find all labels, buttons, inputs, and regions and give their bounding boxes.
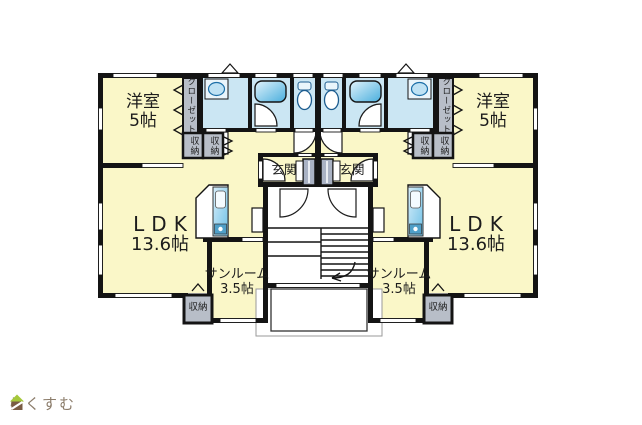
storage-label: 収納 — [203, 134, 223, 157]
vent-triangles — [222, 64, 414, 73]
washbasin-icon — [205, 79, 228, 99]
storage-label: 収納 — [413, 134, 433, 157]
washbasin-icon — [408, 79, 431, 99]
closet-label-left: クローゼット — [183, 80, 198, 131]
entrance-label-right: 玄関 — [331, 163, 373, 177]
counter — [373, 208, 384, 232]
site-logo: らくすむ — [8, 393, 76, 414]
storage-label: 収納 — [433, 134, 453, 157]
ldk-label-left: LDK 13.6帖 — [108, 213, 212, 256]
counter — [252, 208, 263, 232]
bathtub-icon — [350, 81, 381, 102]
house-icon — [8, 393, 26, 411]
floorplan-page: 洋室 5帖 洋室 5帖 LDK 13.6帖 LDK 13.6帖 サンルーム 3.… — [0, 0, 642, 425]
toilet-icon — [325, 82, 339, 110]
sunroom-label-left: サンルーム 3.5帖 — [186, 268, 288, 297]
storage-label: 収納 — [184, 303, 212, 314]
toilet-icon — [298, 82, 312, 110]
storage-label: 収納 — [424, 303, 452, 314]
storage-label: 収納 — [183, 134, 203, 157]
sunroom-label-right: サンルーム 3.5帖 — [348, 268, 450, 297]
bathtub-icon — [255, 81, 286, 102]
bedroom-label-left: 洋室 5帖 — [103, 93, 183, 131]
entrance-label-left: 玄関 — [263, 163, 305, 177]
closet-label-right: クローゼット — [438, 80, 453, 131]
floorplan-drawing — [0, 0, 642, 425]
bedroom-label-right: 洋室 5帖 — [453, 93, 533, 131]
ldk-label-right: LDK 13.6帖 — [424, 213, 528, 256]
